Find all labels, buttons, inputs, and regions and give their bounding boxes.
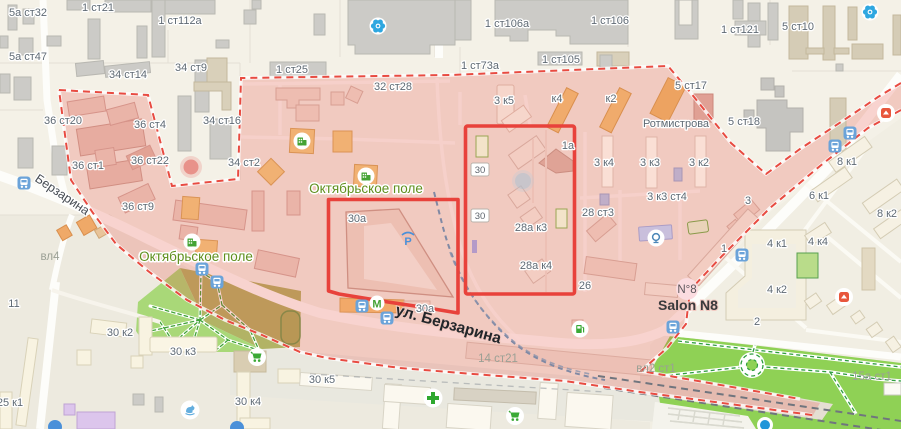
- svg-text:36 ст9: 36 ст9: [122, 201, 154, 213]
- svg-text:Ротмистрова: Ротмистрова: [643, 118, 710, 130]
- svg-text:30 к2: 30 к2: [107, 327, 133, 339]
- svg-text:25 к1: 25 к1: [0, 397, 23, 409]
- svg-text:3: 3: [745, 195, 751, 207]
- svg-text:34 ст9: 34 ст9: [175, 62, 207, 74]
- svg-text:5 ст18: 5 ст18: [728, 116, 760, 128]
- svg-text:2: 2: [754, 316, 760, 328]
- svg-text:28 ст3: 28 ст3: [582, 207, 614, 219]
- svg-text:вл2 ст1: вл2 ст1: [636, 363, 676, 375]
- svg-text:28а к4: 28а к4: [520, 260, 552, 272]
- svg-text:8 к2: 8 к2: [877, 208, 897, 220]
- svg-text:1 ст106: 1 ст106: [591, 15, 629, 27]
- svg-text:6 к1: 6 к1: [809, 190, 829, 202]
- svg-text:4 к2: 4 к2: [767, 284, 787, 296]
- svg-text:36 ст1: 36 ст1: [72, 160, 104, 172]
- svg-text:1 ст105: 1 ст105: [542, 54, 580, 66]
- svg-text:P: P: [404, 236, 411, 248]
- svg-text:26: 26: [579, 280, 591, 292]
- svg-text:32 ст28: 32 ст28: [374, 81, 412, 93]
- svg-text:3 к4: 3 к4: [594, 157, 614, 169]
- svg-text:вл4: вл4: [41, 251, 61, 263]
- svg-text:4 к4: 4 к4: [808, 236, 828, 248]
- svg-text:4 к1: 4 к1: [767, 238, 787, 250]
- svg-text:34 ст16: 34 ст16: [203, 115, 241, 127]
- svg-text:8 к1: 8 к1: [837, 156, 857, 168]
- svg-text:30 к4: 30 к4: [235, 396, 261, 408]
- svg-text:28а к3: 28а к3: [515, 222, 547, 234]
- svg-text:1 ст73а: 1 ст73а: [461, 60, 500, 72]
- svg-text:5 ст10: 5 ст10: [782, 21, 814, 33]
- svg-text:1 ст106а: 1 ст106а: [485, 18, 530, 30]
- svg-text:3 к5: 3 к5: [494, 95, 514, 107]
- svg-text:34 ст14: 34 ст14: [109, 69, 147, 81]
- svg-text:5 ст17: 5 ст17: [675, 80, 707, 92]
- svg-text:34 ст2: 34 ст2: [228, 157, 260, 169]
- svg-text:1 ст25: 1 ст25: [276, 64, 308, 76]
- svg-text:5а ст47: 5а ст47: [9, 51, 47, 63]
- svg-text:30: 30: [475, 211, 486, 222]
- svg-text:Октябрьское поле: Октябрьское поле: [309, 181, 423, 196]
- svg-text:30а: 30а: [348, 213, 367, 225]
- svg-text:3 к3 ст4: 3 к3 ст4: [647, 191, 687, 203]
- svg-text:36 ст20: 36 ст20: [44, 115, 82, 127]
- svg-text:15а ст1: 15а ст1: [852, 371, 892, 383]
- svg-text:Salon N8: Salon N8: [658, 297, 718, 313]
- svg-text:36 ст4: 36 ст4: [134, 119, 166, 131]
- svg-text:к4: к4: [552, 93, 563, 105]
- svg-text:3 к2: 3 к2: [689, 157, 709, 169]
- svg-text:30 к5: 30 к5: [309, 374, 335, 386]
- svg-text:1 ст21: 1 ст21: [82, 2, 114, 14]
- svg-text:14 ст21: 14 ст21: [478, 353, 518, 365]
- svg-text:1: 1: [721, 243, 727, 255]
- svg-text:к2: к2: [606, 93, 617, 105]
- svg-text:36 ст22: 36 ст22: [131, 155, 169, 167]
- svg-text:11: 11: [8, 298, 19, 310]
- svg-text:N°8: N°8: [677, 284, 696, 296]
- svg-text:30 к3: 30 к3: [170, 346, 196, 358]
- svg-text:1 ст121: 1 ст121: [721, 24, 759, 36]
- svg-text:1 ст112а: 1 ст112а: [158, 15, 202, 27]
- svg-text:3 к3: 3 к3: [640, 157, 660, 169]
- svg-text:1а: 1а: [562, 140, 575, 152]
- svg-text:М: М: [372, 299, 381, 311]
- svg-text:Октябрьское поле: Октябрьское поле: [139, 249, 253, 264]
- svg-text:30: 30: [475, 165, 486, 176]
- svg-text:5а ст32: 5а ст32: [9, 7, 47, 19]
